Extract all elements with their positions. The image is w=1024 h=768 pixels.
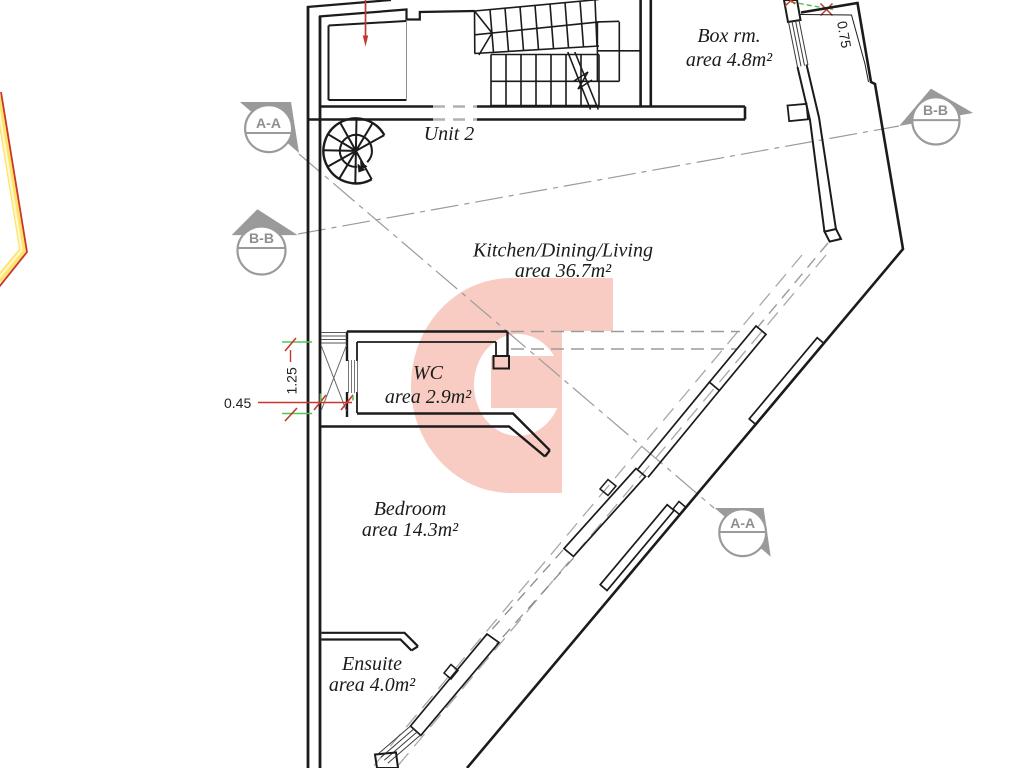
- svg-text:area 2.9m²: area 2.9m²: [385, 386, 472, 408]
- svg-text:area 14.3m²: area 14.3m²: [362, 519, 459, 541]
- svg-text:1.25: 1.25: [284, 367, 300, 394]
- svg-text:Box rm.: Box rm.: [697, 25, 760, 47]
- svg-text:Unit 2: Unit 2: [424, 123, 475, 145]
- svg-text:B-B: B-B: [249, 230, 274, 246]
- svg-text:Kitchen/Dining/Living: Kitchen/Dining/Living: [472, 240, 653, 262]
- svg-text:0.45: 0.45: [224, 395, 251, 411]
- svg-text:Ensuite: Ensuite: [341, 653, 402, 675]
- svg-text:WC: WC: [413, 362, 444, 384]
- svg-text:area 36.7m²: area 36.7m²: [515, 260, 612, 282]
- svg-text:Bedroom: Bedroom: [374, 498, 447, 520]
- svg-text:B-B: B-B: [923, 102, 948, 118]
- svg-text:area 4.0m²: area 4.0m²: [329, 674, 416, 696]
- svg-text:area 4.8m²: area 4.8m²: [686, 49, 773, 71]
- svg-text:A-A: A-A: [730, 515, 755, 531]
- svg-text:0.75: 0.75: [834, 20, 855, 50]
- svg-text:A-A: A-A: [256, 115, 281, 131]
